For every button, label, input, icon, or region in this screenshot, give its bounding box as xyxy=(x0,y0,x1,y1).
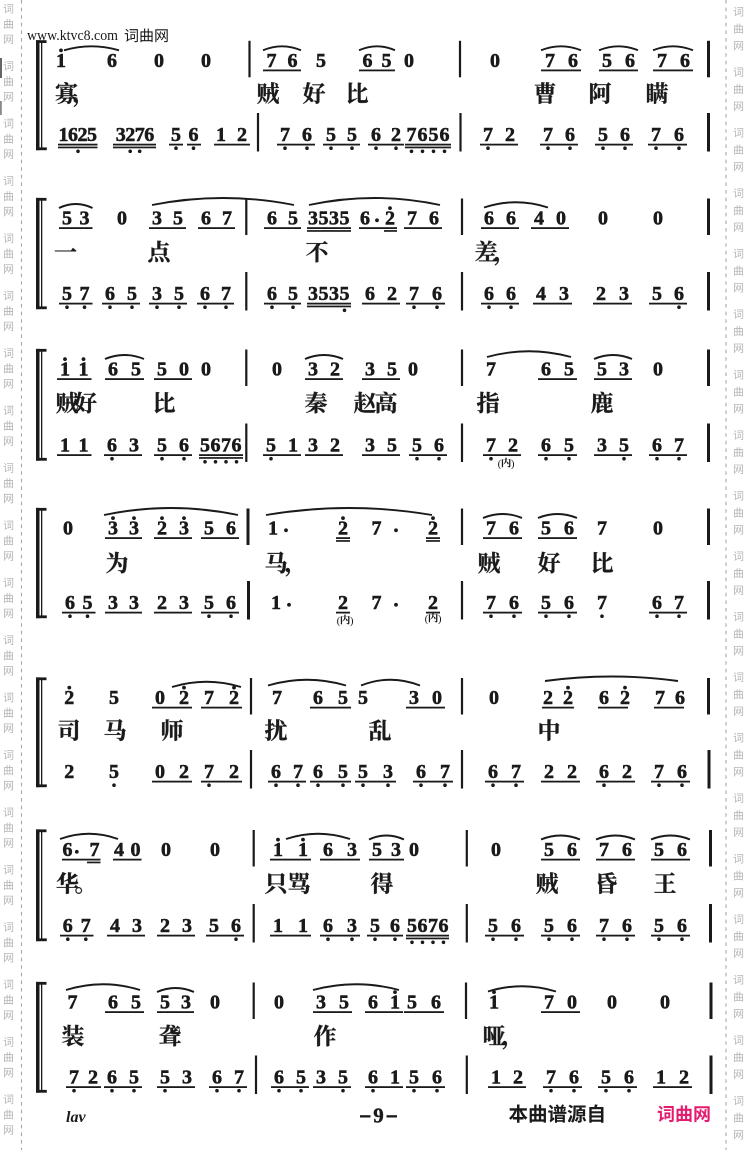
svg-text:6: 6 xyxy=(677,915,687,937)
svg-text:6: 6 xyxy=(541,435,551,457)
svg-text:0: 0 xyxy=(179,359,189,381)
svg-text:0: 0 xyxy=(408,359,418,381)
svg-text:6: 6 xyxy=(506,283,516,305)
svg-text:2: 2 xyxy=(157,518,167,540)
svg-text:0: 0 xyxy=(201,359,211,381)
svg-text:1: 1 xyxy=(79,435,89,457)
svg-text:6: 6 xyxy=(568,50,578,72)
svg-text:1: 1 xyxy=(298,839,308,861)
svg-text:6: 6 xyxy=(313,687,323,709)
svg-text:7: 7 xyxy=(428,915,438,937)
svg-text:7: 7 xyxy=(407,124,417,146)
svg-text:6: 6 xyxy=(267,283,277,305)
svg-text:6: 6 xyxy=(418,124,428,146)
svg-text:0: 0 xyxy=(607,992,617,1014)
svg-text:4: 4 xyxy=(114,839,124,861)
svg-text:6: 6 xyxy=(674,283,684,305)
svg-text:5: 5 xyxy=(288,283,298,305)
svg-text:6: 6 xyxy=(652,592,662,614)
svg-text:6: 6 xyxy=(144,124,154,146)
svg-text:5: 5 xyxy=(654,839,664,861)
svg-text:7: 7 xyxy=(272,687,282,709)
svg-text:2: 2 xyxy=(88,1067,98,1089)
svg-text:6: 6 xyxy=(506,208,516,230)
svg-text:6: 6 xyxy=(564,518,574,540)
svg-text:1: 1 xyxy=(79,359,89,381)
svg-text:5: 5 xyxy=(564,435,574,457)
svg-text:1: 1 xyxy=(491,1067,501,1089)
svg-text:): ) xyxy=(511,458,515,470)
svg-text:0: 0 xyxy=(660,992,670,1014)
svg-text:5: 5 xyxy=(429,124,439,146)
svg-text:6: 6 xyxy=(680,50,690,72)
svg-text:0: 0 xyxy=(404,50,414,72)
svg-text:3: 3 xyxy=(347,915,357,937)
svg-text:6: 6 xyxy=(108,359,118,381)
svg-text:7: 7 xyxy=(234,1067,244,1089)
svg-text:2: 2 xyxy=(157,592,167,614)
svg-text:2: 2 xyxy=(385,208,395,230)
svg-text:6: 6 xyxy=(652,435,662,457)
svg-text:2: 2 xyxy=(387,283,397,305)
svg-text:5: 5 xyxy=(340,283,350,305)
svg-text:0: 0 xyxy=(567,992,577,1014)
svg-text:7: 7 xyxy=(293,761,303,783)
svg-text:5: 5 xyxy=(387,359,397,381)
svg-text:3: 3 xyxy=(316,992,326,1014)
svg-text:6: 6 xyxy=(271,761,281,783)
svg-text:6: 6 xyxy=(541,359,551,381)
svg-text:7: 7 xyxy=(599,839,609,861)
svg-text:5: 5 xyxy=(382,50,392,72)
svg-text:2: 2 xyxy=(513,1067,523,1089)
svg-text:0: 0 xyxy=(489,687,499,709)
svg-text:5: 5 xyxy=(407,915,417,937)
svg-text:3: 3 xyxy=(329,208,339,230)
svg-text:6: 6 xyxy=(65,592,75,614)
svg-text:7: 7 xyxy=(90,839,100,861)
svg-text:6: 6 xyxy=(624,1067,634,1089)
svg-text:www.ktvc8.com: www.ktvc8.com xyxy=(27,28,118,44)
svg-text:6: 6 xyxy=(323,839,333,861)
svg-text:5: 5 xyxy=(157,435,167,457)
svg-text:7: 7 xyxy=(222,208,232,230)
svg-text:5: 5 xyxy=(109,761,119,783)
svg-text:3: 3 xyxy=(409,687,419,709)
svg-text:7: 7 xyxy=(221,283,231,305)
svg-text:5: 5 xyxy=(171,124,181,146)
svg-text:6: 6 xyxy=(567,915,577,937)
svg-text:7: 7 xyxy=(69,1067,79,1089)
svg-text:6: 6 xyxy=(677,839,687,861)
svg-text:1: 1 xyxy=(273,839,283,861)
svg-text:5: 5 xyxy=(544,839,554,861)
svg-text:3: 3 xyxy=(308,208,318,230)
svg-text:6: 6 xyxy=(189,124,199,146)
svg-text:(: ( xyxy=(425,613,429,625)
svg-text:2: 2 xyxy=(330,359,340,381)
svg-text:5: 5 xyxy=(564,359,574,381)
svg-text:0: 0 xyxy=(490,50,500,72)
svg-text:6: 6 xyxy=(68,124,78,146)
svg-text:2: 2 xyxy=(563,687,573,709)
svg-text:5: 5 xyxy=(601,1067,611,1089)
svg-text:7: 7 xyxy=(483,124,493,146)
svg-text:5: 5 xyxy=(652,283,662,305)
svg-text:6: 6 xyxy=(200,283,210,305)
svg-text:5: 5 xyxy=(347,124,357,146)
svg-text:6: 6 xyxy=(599,687,609,709)
svg-text:5: 5 xyxy=(157,359,167,381)
svg-text:6: 6 xyxy=(274,1067,284,1089)
svg-text:2: 2 xyxy=(620,687,630,709)
svg-text:5: 5 xyxy=(316,50,326,72)
svg-text:7: 7 xyxy=(486,435,496,457)
svg-text:2: 2 xyxy=(64,761,74,783)
svg-text:5: 5 xyxy=(358,687,368,709)
svg-text:5: 5 xyxy=(602,50,612,72)
svg-text:7: 7 xyxy=(545,50,555,72)
svg-text:6: 6 xyxy=(439,915,449,937)
svg-text:3: 3 xyxy=(365,359,375,381)
svg-text:6: 6 xyxy=(212,1067,222,1089)
svg-text:5: 5 xyxy=(541,592,551,614)
svg-text:7: 7 xyxy=(80,283,90,305)
svg-text:2: 2 xyxy=(229,687,239,709)
svg-text:3: 3 xyxy=(597,435,607,457)
svg-text:0: 0 xyxy=(154,50,164,72)
svg-text:6: 6 xyxy=(313,761,323,783)
svg-text:1: 1 xyxy=(390,992,400,1014)
svg-text:0: 0 xyxy=(653,359,663,381)
svg-text:3: 3 xyxy=(152,283,162,305)
svg-text:7: 7 xyxy=(654,761,664,783)
svg-text:5: 5 xyxy=(87,124,97,146)
svg-text:0: 0 xyxy=(201,50,211,72)
svg-text:4: 4 xyxy=(110,915,120,937)
svg-text:2: 2 xyxy=(567,761,577,783)
svg-text:6: 6 xyxy=(432,1067,442,1089)
svg-text:6: 6 xyxy=(363,50,373,72)
svg-text:7: 7 xyxy=(372,518,382,540)
svg-text:1: 1 xyxy=(273,915,283,937)
svg-text:1: 1 xyxy=(656,1067,666,1089)
svg-text:3: 3 xyxy=(181,992,191,1014)
svg-text:6: 6 xyxy=(677,761,687,783)
svg-text:6: 6 xyxy=(432,283,442,305)
svg-text:6: 6 xyxy=(390,915,400,937)
svg-text:5: 5 xyxy=(266,435,276,457)
svg-text:7: 7 xyxy=(267,50,277,72)
svg-text:7: 7 xyxy=(486,592,496,614)
svg-text:5: 5 xyxy=(131,359,141,381)
svg-text:5: 5 xyxy=(109,687,119,709)
svg-text:6: 6 xyxy=(622,915,632,937)
svg-text:3: 3 xyxy=(383,761,393,783)
svg-text:5: 5 xyxy=(62,283,72,305)
svg-text:6: 6 xyxy=(674,124,684,146)
svg-text:6: 6 xyxy=(179,435,189,457)
svg-text:5: 5 xyxy=(129,1067,139,1089)
svg-text:7: 7 xyxy=(544,992,554,1014)
svg-text:7: 7 xyxy=(674,435,684,457)
svg-text:7: 7 xyxy=(486,359,496,381)
svg-text:0: 0 xyxy=(598,208,608,230)
svg-text:2: 2 xyxy=(596,283,606,305)
svg-text:6: 6 xyxy=(360,208,370,230)
svg-text:2: 2 xyxy=(428,518,438,540)
svg-text:0: 0 xyxy=(161,839,171,861)
svg-text:5: 5 xyxy=(409,1067,419,1089)
svg-text:6: 6 xyxy=(567,839,577,861)
svg-text:3: 3 xyxy=(329,283,339,305)
svg-text:0: 0 xyxy=(274,992,284,1014)
svg-text:0: 0 xyxy=(117,208,127,230)
svg-text:7: 7 xyxy=(511,761,521,783)
svg-text:6: 6 xyxy=(484,283,494,305)
svg-text:5: 5 xyxy=(619,435,629,457)
svg-text:2: 2 xyxy=(64,687,74,709)
svg-text:3: 3 xyxy=(179,592,189,614)
svg-text:2: 2 xyxy=(622,761,632,783)
svg-text:2: 2 xyxy=(544,761,554,783)
svg-text:6: 6 xyxy=(232,435,242,457)
svg-text:1: 1 xyxy=(271,592,281,614)
svg-text:5: 5 xyxy=(541,518,551,540)
svg-text:5: 5 xyxy=(598,124,608,146)
svg-text:3: 3 xyxy=(182,1067,192,1089)
svg-text:5: 5 xyxy=(319,283,329,305)
svg-text:2: 2 xyxy=(330,435,340,457)
svg-text:0: 0 xyxy=(155,687,165,709)
svg-text:0: 0 xyxy=(272,359,282,381)
svg-text:6: 6 xyxy=(484,208,494,230)
svg-text:6: 6 xyxy=(625,50,635,72)
svg-text:7: 7 xyxy=(372,592,382,614)
svg-text:3: 3 xyxy=(132,915,142,937)
svg-text:6: 6 xyxy=(226,518,236,540)
svg-text:6: 6 xyxy=(108,992,118,1014)
svg-text:5: 5 xyxy=(338,761,348,783)
svg-text:5: 5 xyxy=(83,592,93,614)
svg-text:0: 0 xyxy=(491,839,501,861)
svg-text:6: 6 xyxy=(675,687,685,709)
svg-text:7: 7 xyxy=(280,124,290,146)
svg-text:3: 3 xyxy=(182,915,192,937)
svg-text:6: 6 xyxy=(488,761,498,783)
svg-text:5: 5 xyxy=(340,208,350,230)
svg-text:5: 5 xyxy=(127,283,137,305)
svg-text:3: 3 xyxy=(316,1067,326,1089)
svg-text:3: 3 xyxy=(308,283,318,305)
svg-text:7: 7 xyxy=(135,124,145,146)
svg-text:6: 6 xyxy=(226,592,236,614)
svg-text:3: 3 xyxy=(129,435,139,457)
svg-text:1: 1 xyxy=(268,518,278,540)
svg-text:7: 7 xyxy=(221,435,231,457)
svg-text:6: 6 xyxy=(509,518,519,540)
svg-text:6: 6 xyxy=(565,124,575,146)
svg-text:7: 7 xyxy=(81,915,91,937)
svg-text:5: 5 xyxy=(326,124,336,146)
svg-text:): ) xyxy=(438,613,442,625)
svg-text:5: 5 xyxy=(200,435,210,457)
svg-text:5: 5 xyxy=(288,208,298,230)
svg-text:5: 5 xyxy=(407,992,417,1014)
svg-text:3: 3 xyxy=(619,283,629,305)
svg-text:3: 3 xyxy=(391,839,401,861)
svg-text:5: 5 xyxy=(62,208,72,230)
svg-text:6: 6 xyxy=(569,1067,579,1089)
svg-text:6: 6 xyxy=(105,283,115,305)
svg-text:6: 6 xyxy=(431,992,441,1014)
svg-text:6: 6 xyxy=(416,761,426,783)
svg-text:1: 1 xyxy=(59,124,69,146)
svg-text:6: 6 xyxy=(288,50,298,72)
svg-text:6: 6 xyxy=(599,761,609,783)
svg-text:9: 9 xyxy=(373,1104,384,1128)
svg-text:5: 5 xyxy=(296,1067,306,1089)
svg-text:6: 6 xyxy=(107,1067,117,1089)
svg-text:): ) xyxy=(350,615,354,627)
svg-text:3: 3 xyxy=(559,283,569,305)
svg-text:5: 5 xyxy=(173,208,183,230)
svg-text:2: 2 xyxy=(338,592,348,614)
svg-text:5: 5 xyxy=(319,208,329,230)
svg-text:5: 5 xyxy=(370,915,380,937)
svg-text:5: 5 xyxy=(544,915,554,937)
svg-text:7: 7 xyxy=(674,592,684,614)
svg-text:3: 3 xyxy=(80,208,90,230)
svg-text:2: 2 xyxy=(237,124,247,146)
svg-text:6: 6 xyxy=(440,124,450,146)
svg-text:5: 5 xyxy=(387,435,397,457)
svg-text:2: 2 xyxy=(428,592,438,614)
svg-text:7: 7 xyxy=(597,592,607,614)
svg-text:6: 6 xyxy=(63,915,73,937)
svg-text:7: 7 xyxy=(597,518,607,540)
svg-text:3: 3 xyxy=(179,518,189,540)
svg-text:1: 1 xyxy=(60,435,70,457)
svg-text:2: 2 xyxy=(160,915,170,937)
svg-text:1: 1 xyxy=(60,359,70,381)
svg-text:5: 5 xyxy=(338,1067,348,1089)
svg-text:2: 2 xyxy=(338,518,348,540)
svg-text:6: 6 xyxy=(267,208,277,230)
svg-text:6: 6 xyxy=(564,592,574,614)
svg-text:6: 6 xyxy=(323,915,333,937)
svg-text:1: 1 xyxy=(56,50,66,72)
svg-text:2: 2 xyxy=(679,1067,689,1089)
svg-text:3: 3 xyxy=(347,839,357,861)
svg-text:6: 6 xyxy=(201,208,211,230)
svg-text:2: 2 xyxy=(391,124,401,146)
svg-text:6: 6 xyxy=(511,915,521,937)
svg-text:0: 0 xyxy=(653,208,663,230)
svg-text:7: 7 xyxy=(407,208,417,230)
svg-text:5: 5 xyxy=(131,992,141,1014)
svg-text:6: 6 xyxy=(434,435,444,457)
svg-text:0: 0 xyxy=(210,839,220,861)
svg-text:7: 7 xyxy=(657,50,667,72)
svg-text:5: 5 xyxy=(488,915,498,937)
svg-text:0: 0 xyxy=(653,518,663,540)
svg-text:3: 3 xyxy=(108,518,118,540)
svg-text:5: 5 xyxy=(412,435,422,457)
svg-text:3: 3 xyxy=(129,518,139,540)
svg-text:6: 6 xyxy=(211,435,221,457)
svg-text:(: ( xyxy=(337,615,341,627)
svg-text:6: 6 xyxy=(302,124,312,146)
svg-text:6: 6 xyxy=(365,283,375,305)
svg-text:4: 4 xyxy=(534,208,544,230)
svg-text:3: 3 xyxy=(129,592,139,614)
svg-text:3: 3 xyxy=(308,359,318,381)
svg-text:1: 1 xyxy=(390,1067,400,1089)
svg-text:6: 6 xyxy=(429,208,439,230)
svg-text:5: 5 xyxy=(358,761,368,783)
svg-text:3: 3 xyxy=(619,359,629,381)
svg-text:6: 6 xyxy=(107,435,117,457)
svg-text:2: 2 xyxy=(543,687,553,709)
svg-text:0: 0 xyxy=(155,761,165,783)
svg-text:5: 5 xyxy=(654,915,664,937)
svg-text:2: 2 xyxy=(508,435,518,457)
svg-text:lav: lav xyxy=(66,1109,86,1126)
svg-text:2: 2 xyxy=(505,124,515,146)
svg-text:6: 6 xyxy=(622,839,632,861)
svg-text:2: 2 xyxy=(179,687,189,709)
svg-text:7: 7 xyxy=(486,518,496,540)
svg-text:7: 7 xyxy=(204,761,214,783)
svg-text:1: 1 xyxy=(298,915,308,937)
svg-text:5: 5 xyxy=(597,359,607,381)
svg-text:6: 6 xyxy=(418,915,428,937)
svg-text:5: 5 xyxy=(160,1067,170,1089)
svg-text:0: 0 xyxy=(409,839,419,861)
svg-text:0: 0 xyxy=(556,208,566,230)
svg-text:5: 5 xyxy=(160,992,170,1014)
svg-text:7: 7 xyxy=(440,761,450,783)
svg-text:5: 5 xyxy=(339,992,349,1014)
svg-text:4: 4 xyxy=(536,283,546,305)
svg-text:5: 5 xyxy=(204,592,214,614)
svg-text:6: 6 xyxy=(509,592,519,614)
svg-text:6: 6 xyxy=(368,1067,378,1089)
svg-text:0: 0 xyxy=(131,839,141,861)
svg-text:7: 7 xyxy=(651,124,661,146)
svg-text:2: 2 xyxy=(125,124,135,146)
svg-text:6: 6 xyxy=(107,50,117,72)
svg-text:1: 1 xyxy=(216,124,226,146)
svg-text:2: 2 xyxy=(179,761,189,783)
svg-text:7: 7 xyxy=(546,1067,556,1089)
svg-text:5: 5 xyxy=(209,915,219,937)
svg-text:2: 2 xyxy=(78,124,88,146)
svg-text:6: 6 xyxy=(368,992,378,1014)
svg-text:0: 0 xyxy=(432,687,442,709)
svg-text:0: 0 xyxy=(63,518,73,540)
svg-text:7: 7 xyxy=(68,992,78,1014)
svg-text:7: 7 xyxy=(204,687,214,709)
svg-text:3: 3 xyxy=(365,435,375,457)
svg-text:7: 7 xyxy=(409,283,419,305)
svg-text:7: 7 xyxy=(543,124,553,146)
svg-text:3: 3 xyxy=(152,208,162,230)
svg-text:2: 2 xyxy=(229,761,239,783)
svg-text:6: 6 xyxy=(620,124,630,146)
svg-text:6: 6 xyxy=(371,124,381,146)
